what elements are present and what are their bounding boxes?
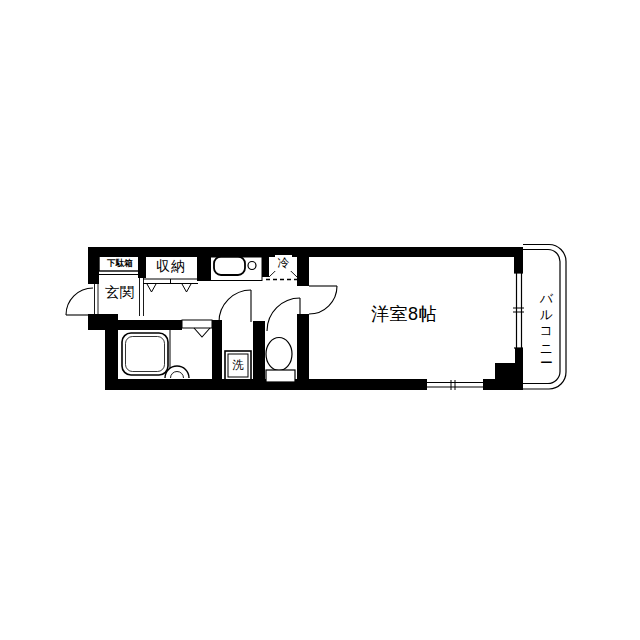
closet-door-mark	[147, 284, 156, 292]
shoe-cabinet-label: 下駄箱	[97, 257, 143, 271]
floor-plan-canvas: 下駄箱 玄関 収納 冷 洗 洋室8帖 バルコニー	[0, 0, 640, 640]
washing-machine-label: 洗	[229, 357, 247, 373]
bathroom-washer-wall	[212, 320, 222, 390]
bathtub-inner	[126, 337, 165, 372]
entrance-label: 玄関	[98, 283, 141, 302]
south-window	[427, 380, 483, 390]
room-divider-wall-lower	[297, 314, 309, 390]
toilet	[266, 338, 295, 383]
toilet-door	[267, 298, 300, 331]
balcony-window	[513, 273, 524, 348]
closet-door	[143, 279, 198, 292]
washer-toilet-wall	[253, 321, 265, 390]
toilet-tank	[266, 370, 295, 382]
main-room-door	[309, 286, 337, 314]
room-divider-wall-upper	[297, 247, 309, 286]
main-room-door-arc	[309, 286, 337, 314]
bathroom-folding-door-mark	[194, 328, 210, 337]
closet-label: 収納	[146, 258, 196, 276]
kitchen-sink	[214, 257, 245, 276]
entrance-door-arc	[66, 288, 93, 315]
kitchen	[211, 257, 263, 281]
bathtub	[122, 333, 168, 375]
closet-door-mark	[182, 284, 191, 292]
washer-area-door-arc	[219, 290, 251, 322]
right-pillar-bottom	[515, 348, 523, 390]
bathroom-folding-door	[182, 320, 212, 337]
toilet-door-arc	[267, 298, 300, 331]
toilet-bowl	[266, 338, 292, 371]
bathroom	[122, 330, 189, 378]
bathroom-folding-door-panel	[182, 320, 212, 328]
closet-kitchen-wall	[197, 247, 210, 281]
stove-burner	[248, 262, 256, 270]
refrigerator-label: 冷	[275, 255, 292, 271]
western-room-label: 洋室8帖	[363, 303, 445, 325]
washer-area-door	[219, 290, 251, 322]
bathroom-top-wall	[118, 320, 182, 330]
kitchen-fridge-wall	[262, 247, 269, 277]
entrance-door	[66, 288, 93, 315]
balcony-label: バルコニー	[533, 275, 555, 367]
right-pillar-top	[514, 247, 523, 273]
